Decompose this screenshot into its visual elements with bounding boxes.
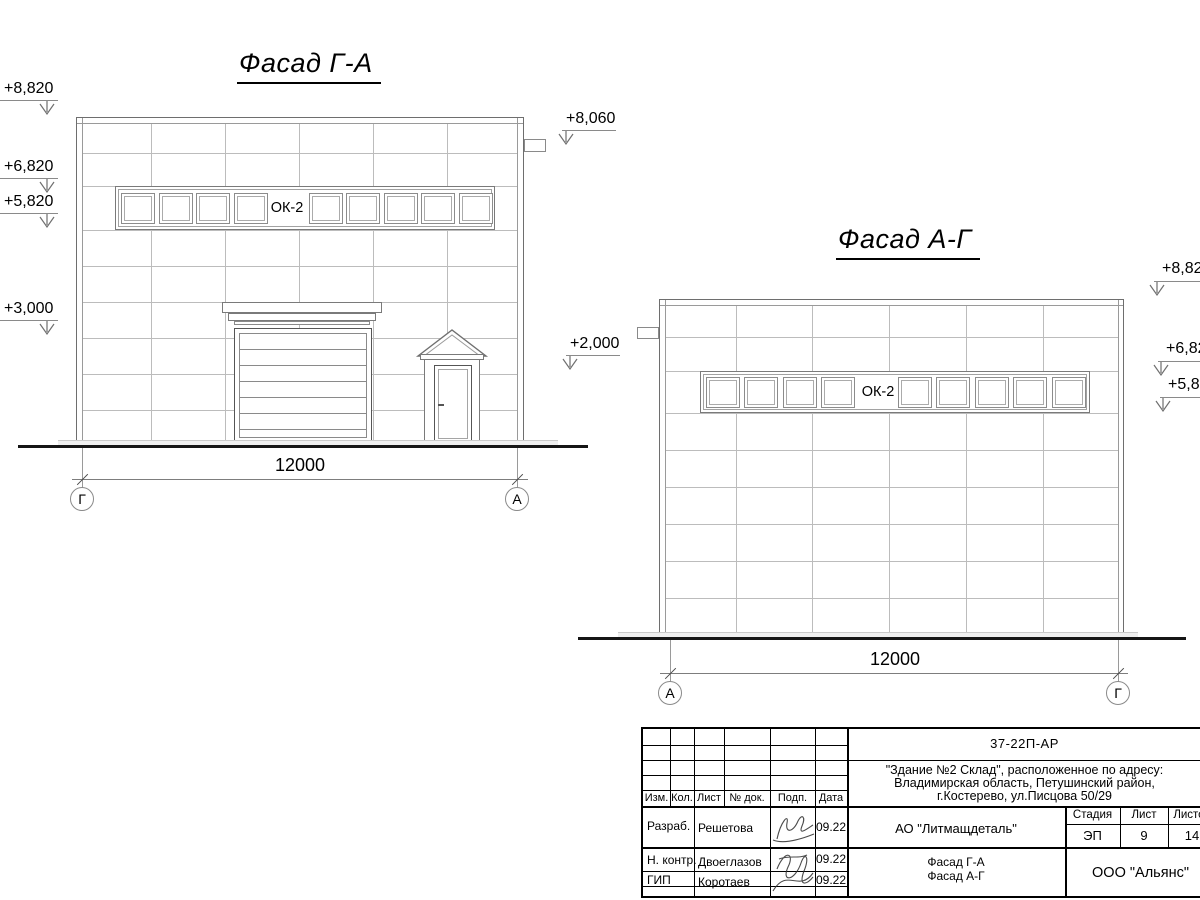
- axis-bubble-g: Г: [70, 487, 94, 511]
- panel-joint: [225, 124, 226, 446]
- tb-role-gip: ГИП: [647, 873, 671, 887]
- window: [975, 377, 1009, 408]
- level-mark-8820: +8,820: [1162, 260, 1200, 278]
- level-arrow-icon: [37, 321, 57, 337]
- sectional-gate: [234, 328, 372, 443]
- tb-line: [643, 745, 847, 746]
- panel-joint: [666, 561, 1118, 562]
- tb-col-kol: Кол.: [670, 792, 694, 804]
- panel-joint: [373, 124, 374, 446]
- level-mark-8060: +8,060: [566, 110, 615, 128]
- drawing-line: [1150, 282, 1164, 295]
- window-band-label: ОК-2: [856, 384, 900, 400]
- drawing-line: [40, 321, 54, 334]
- level-arrow-icon: [37, 101, 57, 117]
- tb-col-izm: Изм.: [643, 792, 670, 804]
- drawing-line: [773, 855, 813, 891]
- tb-stage-header: Стадия: [1065, 809, 1120, 821]
- gate-canopy-top: [222, 302, 382, 313]
- drawing-line: [773, 817, 814, 842]
- tb-role-developed: Разраб.: [647, 819, 690, 833]
- corner-line-right: [1118, 300, 1119, 639]
- drawing-line: [563, 356, 577, 369]
- tb-sheets-header: Листов: [1168, 809, 1200, 821]
- axis-extension-line: [1118, 640, 1119, 682]
- window: [159, 193, 193, 224]
- drawing-page: { "sheet": { "facade_ga": { "title": "Фа…: [0, 0, 1200, 900]
- panel-joint: [83, 266, 517, 267]
- window: [459, 193, 493, 224]
- panel-joint: [151, 124, 152, 446]
- tb-name-gip: Коротаев: [698, 875, 750, 889]
- drawing-line: [559, 131, 573, 144]
- scupper: [524, 139, 546, 152]
- level-mark-2000: +2,000: [570, 335, 619, 353]
- axis-extension-line: [82, 448, 83, 488]
- panel-joint: [83, 153, 517, 154]
- tb-doc-code: 37-22П-АР: [847, 736, 1200, 751]
- window: [744, 377, 778, 408]
- facade-ga-title: Фасад Г-А: [237, 48, 381, 84]
- window: [706, 377, 740, 408]
- title-block: Изм. Кол. Лист № док. Подп. Дата Разраб.…: [641, 727, 1200, 898]
- signature-ncontrol-gip: [769, 845, 815, 897]
- tb-project-line3: г.Костерево, ул.Писцова 50/29: [847, 790, 1200, 804]
- panel-joint: [1043, 306, 1044, 638]
- drawing-line: [1156, 398, 1170, 411]
- window-band: ОК-2: [700, 371, 1090, 413]
- window: [196, 193, 230, 224]
- level-mark-6820: +6,820: [4, 158, 53, 176]
- tb-line: [643, 775, 847, 776]
- gate-canopy-lip: [234, 321, 370, 325]
- tb-line: [694, 729, 695, 898]
- level-arrow-icon: [560, 356, 580, 372]
- corner-line-left: [82, 118, 83, 447]
- tb-date-gip: 09.22: [815, 873, 847, 887]
- drawing-line: [418, 330, 486, 356]
- window: [346, 193, 380, 224]
- window-band: ОК-2: [115, 186, 495, 230]
- tb-organization: ООО "Альянс": [1065, 865, 1200, 881]
- panel-joint: [666, 598, 1118, 599]
- dimension-line: [72, 479, 528, 480]
- window: [309, 193, 343, 224]
- panel-joint: [83, 230, 517, 231]
- window: [783, 377, 817, 408]
- window: [384, 193, 418, 224]
- tb-sheet-name-1: Фасад Г-А: [847, 855, 1065, 869]
- corner-line-left: [665, 300, 666, 639]
- dimension-line: [660, 673, 1128, 674]
- axis-extension-line: [517, 448, 518, 488]
- window: [234, 193, 268, 224]
- facade-ag-building: [659, 299, 1124, 640]
- panel-joint: [666, 450, 1118, 451]
- panel-joint: [812, 306, 813, 638]
- parapet-cap-line: [660, 305, 1123, 306]
- dimension-text: 12000: [240, 455, 360, 476]
- axis-bubble-a: А: [658, 681, 682, 705]
- facade-ag-title: Фасад А-Г: [836, 224, 980, 260]
- tb-col-doc: № док.: [724, 792, 770, 804]
- gate-canopy-middle: [228, 313, 376, 321]
- window: [898, 377, 932, 408]
- door-gable-canopy: [414, 324, 490, 358]
- tb-sheet-value: 9: [1120, 828, 1168, 843]
- drawing-line: [40, 179, 54, 192]
- axis-bubble-a: А: [505, 487, 529, 511]
- axis-extension-line: [670, 640, 671, 682]
- parapet-cap-line: [77, 123, 523, 124]
- panel-joint: [666, 524, 1118, 525]
- level-mark-3000: +3,000: [4, 300, 53, 318]
- level-mark-8820: +8,820: [4, 80, 53, 98]
- level-arrow-icon: [37, 214, 57, 230]
- window: [936, 377, 970, 408]
- window-band-label: ОК-2: [266, 200, 308, 216]
- level-mark-6820: +6,820: [1166, 340, 1200, 358]
- panel-joint: [966, 306, 967, 638]
- dimension-text: 12000: [820, 649, 970, 670]
- axis-bubble-g: Г: [1106, 681, 1130, 705]
- tb-col-podp: Подп.: [770, 792, 815, 804]
- tb-sheets-value: 14: [1168, 828, 1200, 843]
- tb-line: [1065, 824, 1200, 825]
- ground-line: [18, 445, 588, 448]
- tb-role-ncontrol: Н. контр.: [647, 853, 697, 867]
- level-mark-5820: +5,820: [4, 193, 53, 211]
- panel-joint: [736, 306, 737, 638]
- tb-line: [643, 847, 1200, 849]
- corner-line-right: [517, 118, 518, 447]
- window: [1052, 377, 1086, 408]
- panel-joint: [666, 413, 1118, 414]
- window: [1013, 377, 1047, 408]
- tb-date-ncontrol: 09.22: [815, 852, 847, 866]
- level-arrow-icon: [1153, 398, 1173, 414]
- scupper: [637, 327, 659, 339]
- door-handle-icon: [438, 404, 444, 406]
- tb-date-developed: 09.22: [815, 820, 847, 834]
- signature-developed: [771, 809, 815, 846]
- panel-joint: [889, 306, 890, 638]
- tb-line: [643, 760, 1200, 761]
- level-mark-5820: +5,820: [1168, 376, 1200, 394]
- tb-line: [643, 790, 847, 791]
- tb-line: [643, 806, 1200, 808]
- drawing-line: [40, 101, 54, 114]
- tb-col-list: Лист: [694, 792, 724, 804]
- drawing-line: [1154, 362, 1168, 375]
- tb-col-data: Дата: [815, 792, 847, 804]
- tb-name-ncontrol: Двоеглазов: [698, 855, 762, 869]
- drawing-line: [40, 214, 54, 227]
- panel-joint: [666, 487, 1118, 488]
- window: [121, 193, 155, 224]
- window: [421, 193, 455, 224]
- tb-name-developed: Решетова: [698, 821, 753, 835]
- gate-slats: [239, 333, 367, 438]
- level-arrow-icon: [1147, 282, 1167, 298]
- door-leaf: [434, 365, 472, 443]
- window: [821, 377, 855, 408]
- level-arrow-icon: [556, 131, 576, 147]
- tb-sheet-header: Лист: [1120, 809, 1168, 821]
- tb-client: АО "Литмащдеталь": [847, 821, 1065, 836]
- panel-joint: [666, 337, 1118, 338]
- tb-line: [643, 871, 847, 872]
- tb-stage-value: ЭП: [1065, 828, 1120, 843]
- tb-sheet-name-2: Фасад А-Г: [847, 869, 1065, 883]
